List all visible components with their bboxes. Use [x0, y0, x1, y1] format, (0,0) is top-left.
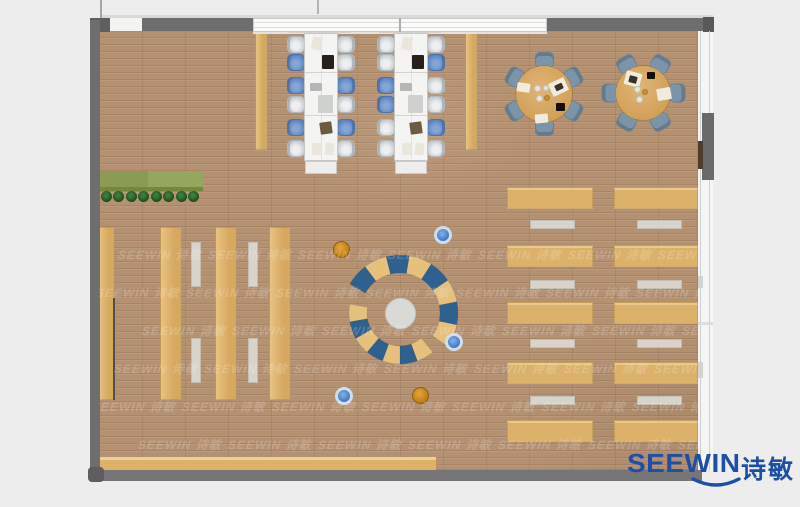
desk-item	[412, 55, 424, 69]
desk-module-line	[305, 115, 337, 116]
desk-item	[402, 143, 411, 155]
table-item	[544, 95, 550, 101]
screen-panel-1	[255, 33, 267, 150]
desk-item	[324, 143, 334, 156]
table-item	[536, 95, 543, 102]
stack-bench-1b	[191, 338, 201, 383]
office-chair	[287, 140, 305, 157]
office-chair	[427, 36, 445, 53]
door-gap-top	[110, 18, 142, 31]
floor-plan-canvas: SEEWIN 诗敏 SEEWIN 诗敏SEEWIN 诗敏SEEWIN 诗敏SEE…	[0, 0, 800, 507]
right-wall-solid	[702, 113, 714, 180]
top-wall-cap-right	[703, 17, 714, 32]
table-item	[647, 72, 655, 79]
office-chair	[337, 54, 355, 71]
brand-logo: SEEWIN 诗敏	[627, 449, 799, 493]
stack-bench-2b	[248, 338, 258, 383]
reading-table	[614, 420, 698, 442]
brand-logo-latin: SEEWIN	[627, 449, 740, 478]
desk-module-line	[395, 72, 427, 73]
reading-table	[614, 362, 698, 384]
table-item	[543, 85, 549, 91]
top-wall-left	[142, 18, 253, 31]
table-item	[656, 87, 672, 101]
book-stack-4	[269, 227, 290, 400]
office-chair	[427, 54, 445, 71]
tree-icon	[188, 191, 199, 202]
stack-shadow-edge	[113, 298, 115, 400]
roof-line-1	[100, 0, 102, 18]
office-chair	[287, 54, 305, 71]
office-chair	[427, 77, 445, 94]
desk-item	[414, 143, 424, 156]
office-chair	[377, 119, 395, 136]
dining-chair	[601, 84, 617, 103]
stool	[412, 387, 429, 404]
lounge-core-table	[385, 298, 416, 329]
stool	[445, 333, 463, 351]
office-chair	[427, 140, 445, 157]
reading-table	[507, 362, 593, 384]
office-chair	[287, 96, 305, 113]
desk-item	[322, 55, 334, 69]
tree-icon	[126, 191, 137, 202]
table-item	[636, 96, 643, 103]
office-chair	[377, 77, 395, 94]
office-chair	[287, 77, 305, 94]
desk-item	[408, 95, 423, 113]
corner-cap-bottom-left	[88, 467, 104, 482]
desk-item	[319, 121, 333, 135]
office-chair	[337, 119, 355, 136]
office-chair	[287, 36, 305, 53]
stool	[333, 241, 350, 258]
desk-item	[312, 143, 321, 155]
right-window-line2	[709, 31, 710, 470]
office-chair	[337, 140, 355, 157]
stool	[335, 387, 353, 405]
right-window-tab1	[698, 276, 703, 288]
book-stack-1	[98, 227, 114, 400]
office-chair	[377, 140, 395, 157]
office-chair	[337, 77, 355, 94]
desk-item	[400, 83, 412, 91]
lounge-bench-segment	[439, 302, 458, 325]
lounge-bench-segment	[386, 255, 409, 274]
reading-bench	[530, 220, 575, 229]
brand-logo-swoosh-icon	[691, 477, 741, 490]
reading-table	[507, 245, 593, 267]
office-chair	[427, 96, 445, 113]
brand-logo-cn: 诗敏	[741, 450, 795, 486]
desk-module-line	[395, 115, 427, 116]
table-item	[642, 89, 648, 95]
left-wall	[90, 20, 100, 470]
right-wall-door	[698, 141, 703, 169]
planter-left	[100, 171, 148, 187]
office-chair	[287, 119, 305, 136]
office-chair	[337, 36, 355, 53]
roof-line-2	[317, 0, 319, 14]
right-window-mullion1	[698, 322, 713, 325]
desk-item	[409, 121, 423, 135]
reading-table	[614, 187, 698, 209]
desk-end-panel	[395, 161, 427, 174]
reading-table	[614, 302, 698, 324]
desk-item	[318, 95, 333, 113]
reading-table	[614, 245, 698, 267]
reading-table	[507, 420, 593, 442]
reading-bench	[637, 339, 682, 348]
reading-bench	[637, 280, 682, 289]
dining-chair	[669, 84, 685, 103]
desk-end-panel	[305, 161, 337, 174]
reading-bench	[530, 339, 575, 348]
desk-item	[310, 83, 322, 91]
window-mullion	[399, 18, 401, 32]
stack-bench-2a	[248, 242, 258, 287]
planter-right	[148, 171, 203, 187]
service-counter	[99, 457, 437, 470]
table-item	[516, 82, 530, 93]
reading-bench	[530, 280, 575, 289]
desk-module-line	[305, 72, 337, 73]
table-item	[556, 103, 565, 111]
table-item	[534, 85, 541, 92]
tree-icon	[163, 191, 174, 202]
reading-bench	[637, 396, 682, 405]
book-stack-2	[160, 227, 181, 400]
reading-bench	[637, 220, 682, 229]
office-chair	[377, 54, 395, 71]
stool	[434, 226, 452, 244]
book-stack-3	[215, 227, 236, 400]
tree-icon	[151, 191, 162, 202]
office-chair	[377, 36, 395, 53]
bottom-wall	[90, 470, 702, 481]
tree-icon	[176, 191, 187, 202]
reading-table	[507, 302, 593, 324]
right-window-line1	[700, 31, 701, 470]
office-chair	[337, 96, 355, 113]
top-wall-right	[547, 18, 703, 31]
right-window-tab2	[698, 362, 703, 378]
tree-icon	[138, 191, 149, 202]
reading-table	[507, 187, 593, 209]
tree-icon	[101, 191, 112, 202]
planter-shadow	[100, 187, 203, 191]
stack-bench-1a	[191, 242, 201, 287]
table-item	[634, 86, 641, 93]
office-chair	[377, 96, 395, 113]
tree-icon	[113, 191, 124, 202]
office-chair	[427, 119, 445, 136]
reading-bench	[530, 396, 575, 405]
screen-panel-2	[465, 33, 477, 150]
table-item	[535, 113, 549, 123]
